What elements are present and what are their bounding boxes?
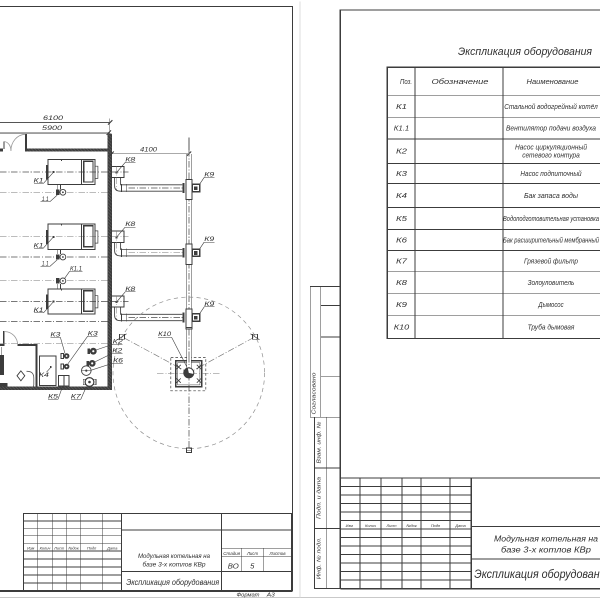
svg-text:К1: К1 <box>396 104 407 111</box>
svg-text:К6: К6 <box>396 237 407 244</box>
svg-text:Колич: Колич <box>40 545 51 550</box>
svg-text:К9: К9 <box>396 302 407 309</box>
svg-text:Наименование: Наименование <box>527 77 579 86</box>
svg-text:К5: К5 <box>396 216 407 223</box>
svg-text:Модульная котельная на: Модульная котельная на <box>138 552 210 560</box>
svg-text:Экспликация оборудования: Экспликация оборудования <box>474 567 600 581</box>
svg-text:4100: 4100 <box>140 147 158 154</box>
svg-text:№док: №док <box>406 523 417 528</box>
svg-text:Поз.: Поз. <box>400 77 412 86</box>
svg-text:К2: К2 <box>396 149 407 156</box>
svg-text:Модульная котельная на: Модульная котельная на <box>494 534 598 543</box>
svg-text:Стадия: Стадия <box>223 551 241 556</box>
svg-text:Подп. и дата: Подп. и дата <box>316 477 322 519</box>
svg-text:Дата: Дата <box>454 523 466 528</box>
svg-text:Изм: Изм <box>27 545 35 550</box>
svg-text:Дата: Дата <box>106 545 118 550</box>
svg-text:Труба дымовая: Труба дымовая <box>528 324 575 332</box>
svg-text:Инф. № подл.: Инф. № подл. <box>316 537 322 579</box>
svg-text:Колич: Колич <box>365 523 376 528</box>
svg-text:5900: 5900 <box>42 125 63 132</box>
svg-text:сетевого контура: сетевого контура <box>522 153 580 160</box>
svg-text:Формат: Формат <box>237 593 260 599</box>
svg-text:Лист: Лист <box>53 545 65 550</box>
svg-text:6100: 6100 <box>43 115 64 122</box>
svg-text:Грязевой фильтр: Грязевой фильтр <box>524 258 578 266</box>
svg-text:К10: К10 <box>394 325 410 332</box>
svg-text:Дымосос: Дымосос <box>538 302 564 309</box>
svg-text:Подп: Подп <box>87 545 97 550</box>
svg-text:Лист: Лист <box>246 551 258 556</box>
svg-text:К1.1: К1.1 <box>394 126 410 133</box>
svg-text:ВО: ВО <box>228 561 239 570</box>
svg-text:Экспликация оборудования: Экспликация оборудования <box>126 577 219 587</box>
svg-text:Бак расширительный мембранный: Бак расширительный мембранный <box>503 236 599 244</box>
svg-text:Обозначение: Обозначение <box>432 77 489 86</box>
svg-text:№док: №док <box>68 545 79 550</box>
svg-text:К3: К3 <box>396 171 407 178</box>
svg-text:Лист: Лист <box>385 523 397 528</box>
svg-text:Вентилятор подачи воздуха: Вентилятор подачи воздуха <box>506 125 596 133</box>
svg-text:Насос циркуляционный: Насос циркуляционный <box>515 144 587 152</box>
svg-text:К8: К8 <box>396 280 407 287</box>
svg-text:базе 3-х котлов КВр: базе 3-х котлов КВр <box>143 561 206 569</box>
svg-text:Золоуловитель: Золоуловитель <box>528 280 575 287</box>
svg-text:базе 3-х котлов КВр: базе 3-х котлов КВр <box>501 545 591 554</box>
svg-text:Согласовано: Согласовано <box>312 373 318 415</box>
svg-text:К7: К7 <box>396 259 408 266</box>
svg-text:Подп: Подп <box>431 523 441 528</box>
svg-text:Стальной водогрейный котёл: Стальной водогрейный котёл <box>504 103 598 111</box>
svg-text:Насос подпиточный: Насос подпиточный <box>520 170 581 178</box>
svg-text:К4: К4 <box>39 372 50 379</box>
svg-text:Водоподготовительная установка: Водоподготовительная установка <box>503 215 599 223</box>
svg-text:Бак запаса воды: Бак запаса воды <box>524 192 579 200</box>
svg-text:А3: А3 <box>265 593 275 599</box>
svg-text:Изм: Изм <box>346 523 354 528</box>
svg-text:К4: К4 <box>396 193 407 200</box>
svg-text:Взам. инф. №: Взам. инф. № <box>316 421 322 463</box>
svg-text:Листов: Листов <box>269 551 287 556</box>
svg-text:Экспликация оборудования: Экспликация оборудования <box>458 46 592 58</box>
